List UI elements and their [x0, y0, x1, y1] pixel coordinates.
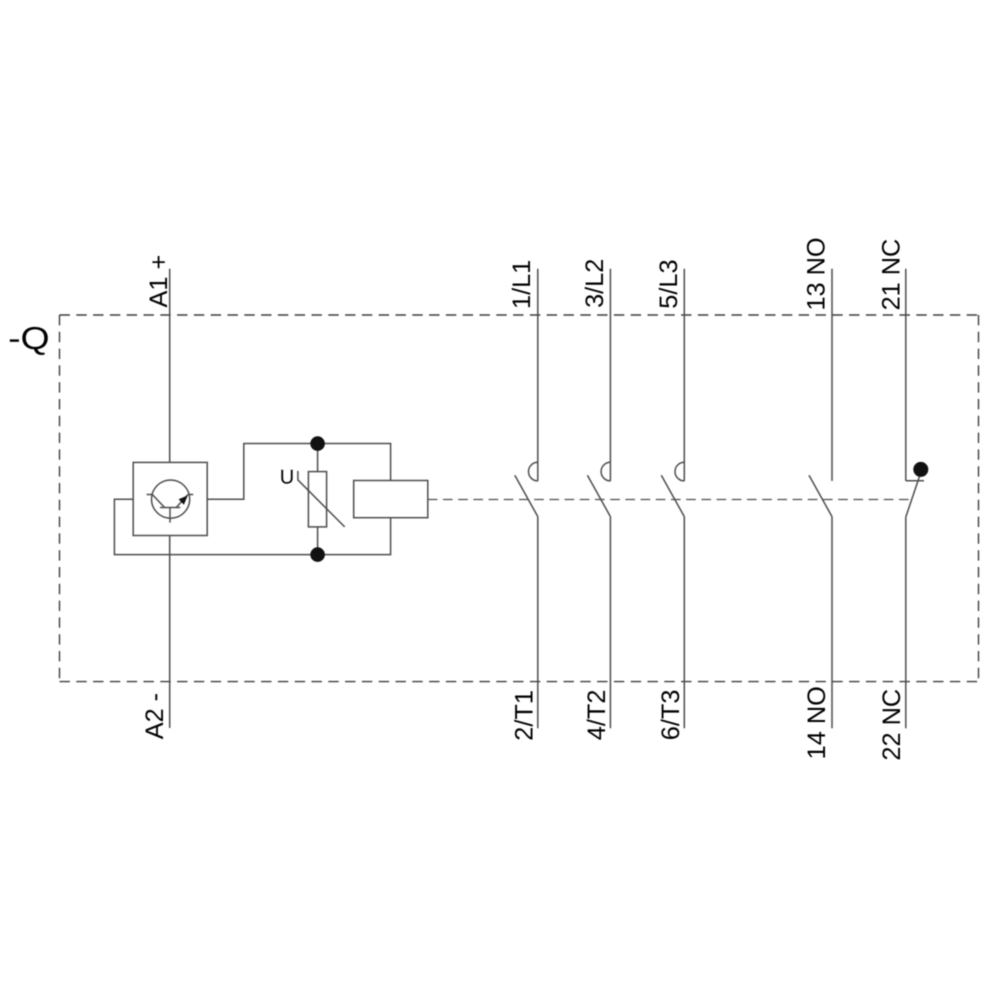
svg-text:-Q: -Q	[8, 321, 50, 356]
svg-text:5/L3: 5/L3	[655, 259, 683, 308]
svg-text:U: U	[280, 466, 294, 488]
svg-text:6/T3: 6/T3	[657, 690, 685, 741]
svg-text:A1 +: A1 +	[145, 255, 173, 308]
svg-text:4/T2: 4/T2	[583, 690, 611, 741]
svg-text:3/L2: 3/L2	[581, 259, 609, 308]
svg-text:A2 -: A2 -	[141, 693, 169, 739]
svg-text:13 NO: 13 NO	[802, 237, 830, 310]
svg-text:1/L1: 1/L1	[508, 260, 536, 309]
svg-text:14 NO: 14 NO	[803, 686, 831, 759]
svg-text:2/T1: 2/T1	[510, 690, 538, 741]
svg-text:21 NC: 21 NC	[877, 239, 905, 311]
svg-text:22 NC: 22 NC	[878, 689, 906, 761]
